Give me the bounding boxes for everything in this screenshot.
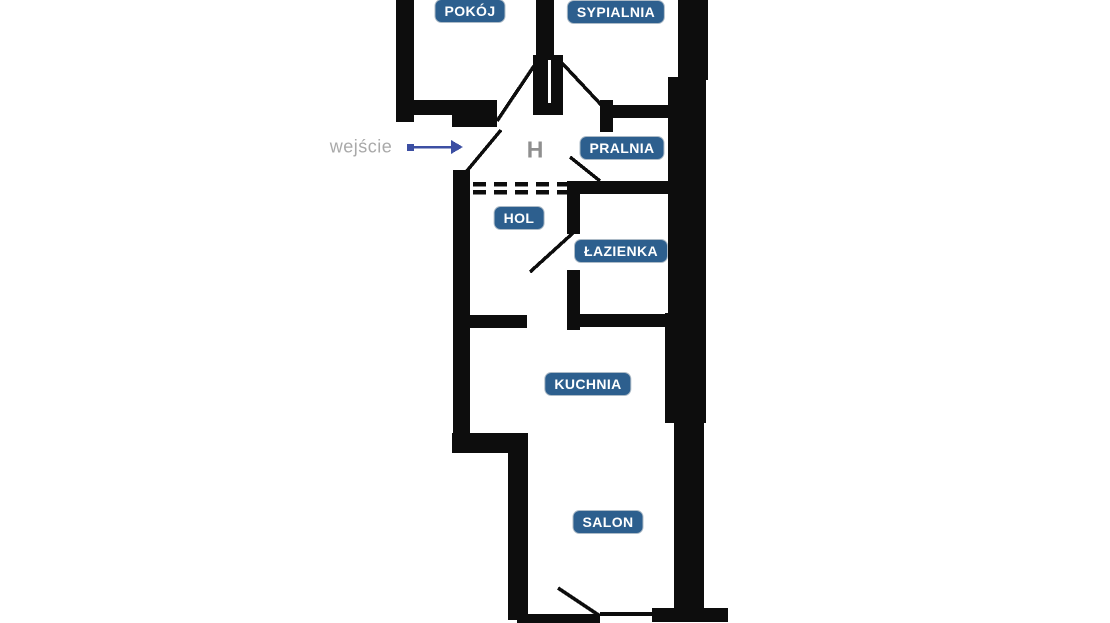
room-label-salon: SALON [574,511,643,533]
entrance-door-leaf [466,130,501,172]
lazienka-door-leaf [530,233,573,272]
entrance-arrow [407,140,463,154]
arrow-head [451,140,463,154]
wardrobe-dashes [473,184,567,192]
room-label-lazienka: ŁAZIENKA [575,240,667,262]
room-label-pokoj: POKÓJ [435,0,504,22]
room-label-pralnia: PRALNIA [580,137,663,159]
room-label-hol: HOL [495,207,544,229]
sypialnia-door-leaf [562,63,606,110]
pralnia-door-leaf [570,157,600,181]
walls [396,0,728,623]
entrance-text: wejście [330,137,393,158]
room-label-kuchnia: KUCHNIA [545,373,630,395]
floor-plan-drawing [0,0,1110,623]
floor-plan-canvas: POKÓJ SYPIALNIA PRALNIA HOL ŁAZIENKA KUC… [0,0,1110,623]
pokoj-door-leaf [497,66,534,121]
balcony-door-leaf [558,588,600,616]
hall-letter-marker: H [527,137,544,164]
room-label-sypialnia: SYPIALNIA [568,1,664,23]
